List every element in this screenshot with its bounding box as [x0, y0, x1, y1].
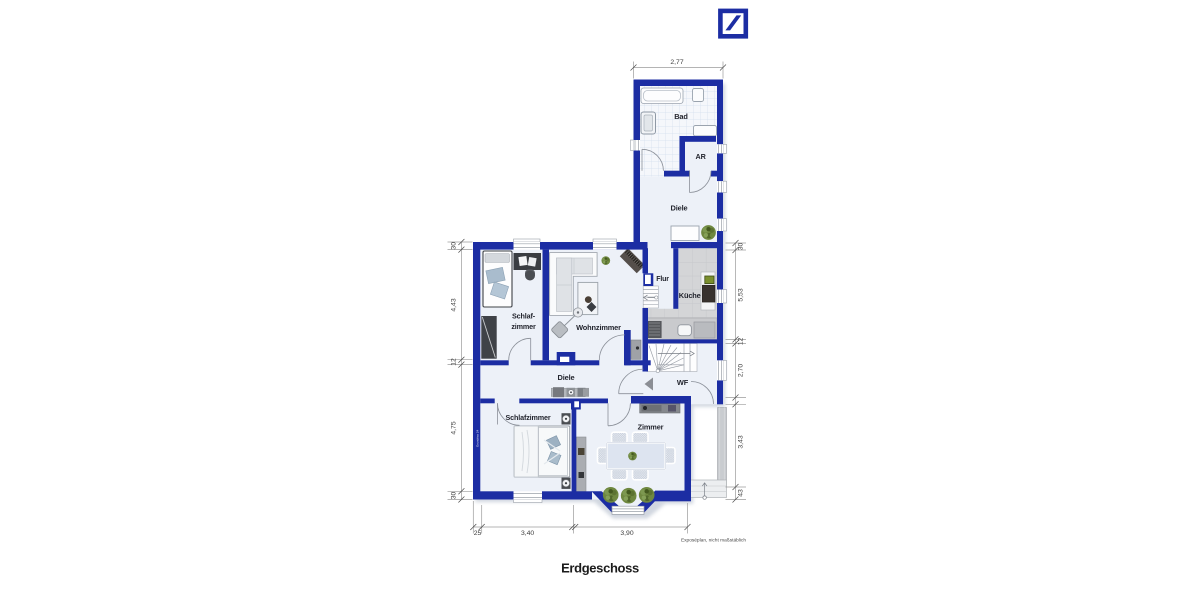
- svg-text:2,70: 2,70: [738, 364, 745, 377]
- svg-text:Wohnzimmer: Wohnzimmer: [576, 323, 621, 332]
- svg-text:2,77: 2,77: [670, 59, 683, 66]
- svg-text:Diele: Diele: [671, 204, 688, 213]
- svg-text:AR: AR: [696, 152, 707, 161]
- svg-text:WF: WF: [677, 378, 689, 387]
- svg-text:3,43: 3,43: [738, 435, 745, 448]
- svg-text:12: 12: [738, 337, 745, 345]
- svg-text:12: 12: [450, 358, 457, 366]
- svg-text:Bad: Bad: [674, 112, 688, 121]
- svg-text:25: 25: [474, 530, 482, 537]
- svg-text:Erdgeschoss: Erdgeschoss: [561, 561, 639, 576]
- svg-text:Schlaf-: Schlaf-: [512, 312, 536, 321]
- svg-text:30: 30: [450, 492, 457, 500]
- svg-text:30: 30: [450, 242, 457, 250]
- svg-text:4,75: 4,75: [450, 421, 457, 434]
- svg-text:5,53: 5,53: [738, 288, 745, 301]
- svg-text:Flur: Flur: [656, 276, 669, 283]
- svg-text:zimmer: zimmer: [511, 322, 536, 331]
- svg-text:Grundriss 24: Grundriss 24: [475, 429, 479, 447]
- svg-text:Küche: Küche: [679, 291, 701, 300]
- svg-text:3,90: 3,90: [620, 530, 633, 537]
- svg-text:30: 30: [738, 243, 745, 251]
- svg-text:Schlafzimmer: Schlafzimmer: [506, 413, 551, 422]
- svg-text:Zimmer: Zimmer: [638, 423, 664, 432]
- svg-text:3,40: 3,40: [521, 530, 534, 537]
- svg-text:Exposéplan, nicht maßstäblich: Exposéplan, nicht maßstäblich: [681, 538, 746, 544]
- svg-text:4,43: 4,43: [450, 298, 457, 311]
- svg-text:Diele: Diele: [558, 373, 575, 382]
- svg-text:43: 43: [738, 489, 745, 497]
